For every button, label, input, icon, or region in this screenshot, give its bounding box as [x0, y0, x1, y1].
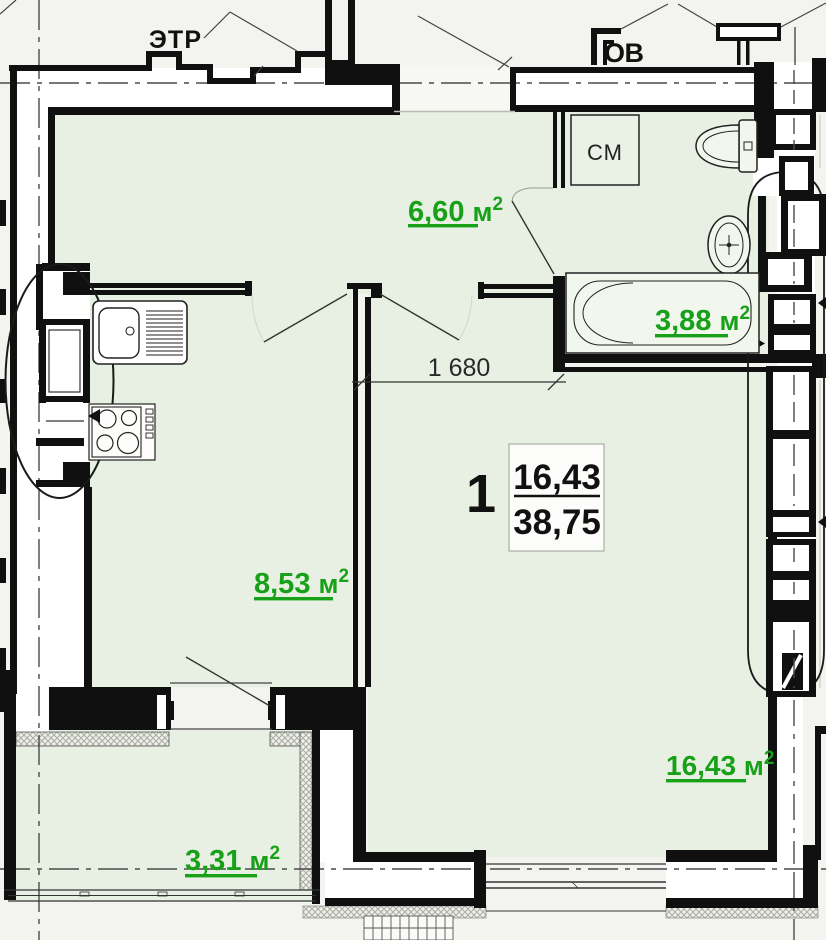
svg-text:3,88 м2: 3,88 м2 — [655, 303, 750, 337]
svg-text:6,60 м2: 6,60 м2 — [408, 194, 503, 228]
svg-text:ОВ: ОВ — [604, 38, 644, 68]
svg-text:1 680: 1 680 — [428, 354, 491, 382]
svg-text:16,43 м2: 16,43 м2 — [666, 748, 774, 781]
svg-text:38,75: 38,75 — [513, 503, 601, 542]
svg-text:СМ: СМ — [587, 140, 623, 165]
svg-text:8,53 м2: 8,53 м2 — [254, 566, 349, 600]
svg-text:3,31 м2: 3,31 м2 — [185, 843, 280, 877]
svg-text:1: 1 — [466, 464, 496, 524]
svg-text:ЭТР: ЭТР — [149, 26, 201, 54]
svg-text:16,43: 16,43 — [513, 458, 601, 497]
